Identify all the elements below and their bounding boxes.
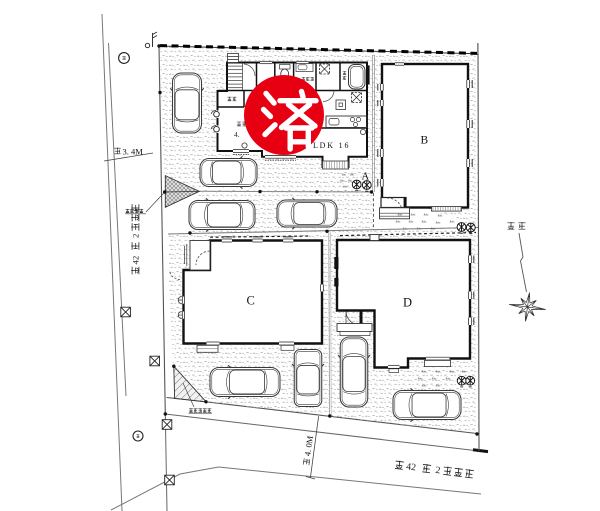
svg-text:4.: 4. <box>234 130 240 139</box>
svg-text:2: 2 <box>131 234 141 238</box>
svg-text:C: C <box>247 294 255 308</box>
svg-text:D: D <box>403 296 412 310</box>
svg-text:LDK 16: LDK 16 <box>313 141 350 150</box>
svg-text:42: 42 <box>405 461 416 473</box>
svg-text:42: 42 <box>131 256 141 265</box>
svg-text:B: B <box>421 135 429 147</box>
